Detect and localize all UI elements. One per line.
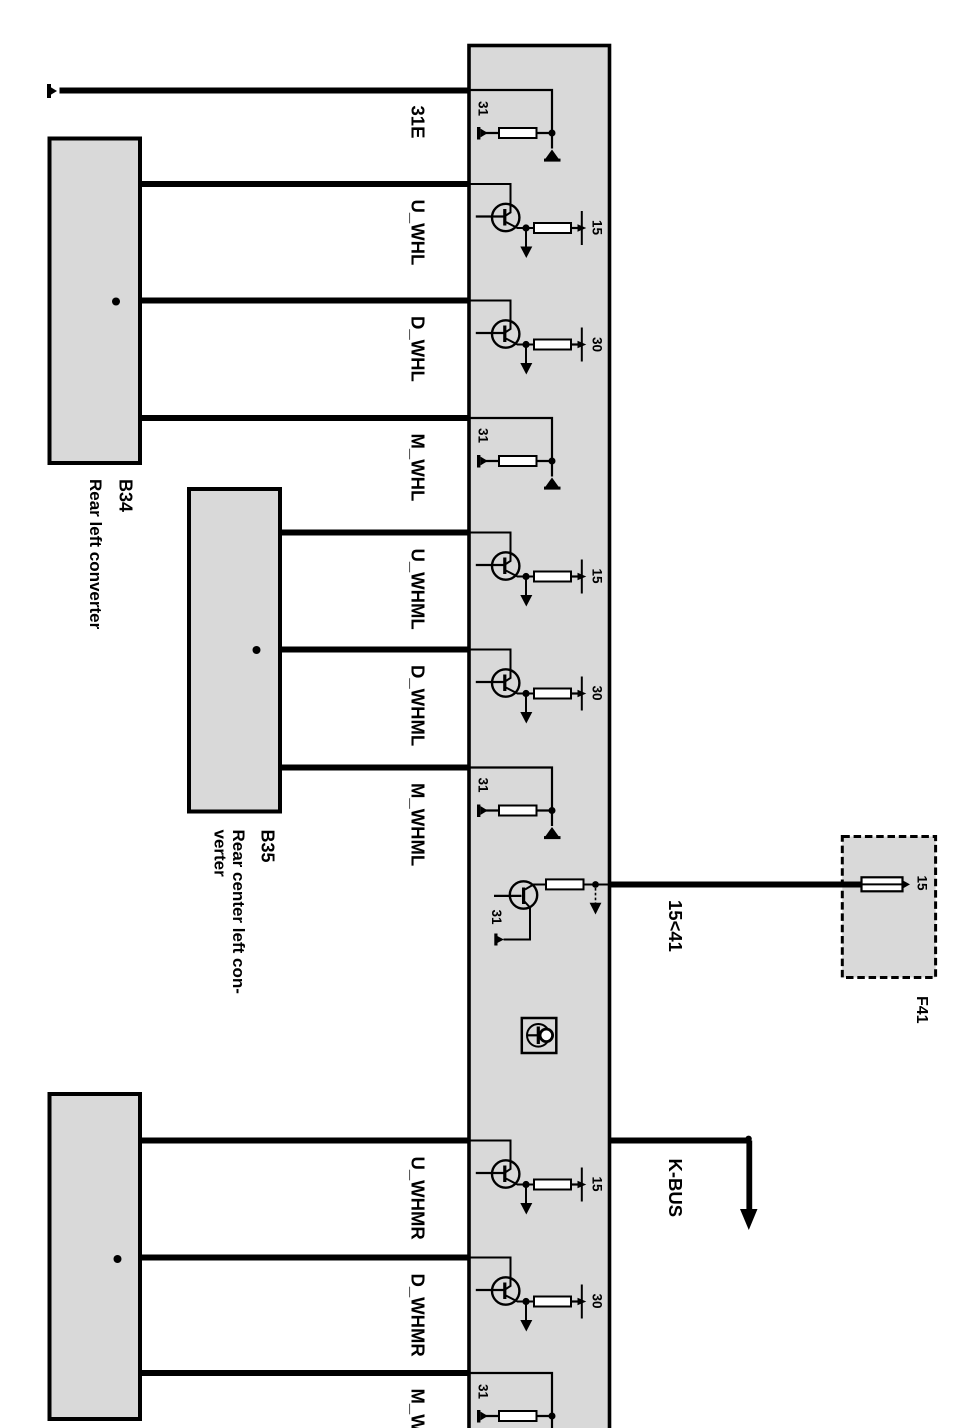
svg-text:B35: B35 [258,830,278,863]
svg-text:M_WHL: M_WHL [407,434,428,502]
svg-text:31: 31 [475,1384,490,1400]
svg-text:M_WHMR: M_WHMR [407,1389,428,1428]
svg-text:30: 30 [590,686,605,701]
svg-text:D_WHMR: D_WHMR [407,1274,428,1357]
svg-text:U_WHL: U_WHL [407,200,428,266]
svg-text:15<41: 15<41 [665,900,686,952]
svg-text:D_WHML: D_WHML [407,665,428,746]
svg-text:31: 31 [475,778,490,794]
svg-text:B34: B34 [116,479,136,512]
svg-text:15: 15 [590,220,605,236]
svg-text:31E: 31E [407,106,428,139]
svg-text:U_WHML: U_WHML [407,549,428,630]
svg-text:D_WHL: D_WHL [407,316,428,382]
svg-text:M_WHML: M_WHML [407,783,428,866]
svg-text:30: 30 [590,1294,605,1309]
svg-text:U_WHMR: U_WHMR [407,1157,428,1240]
svg-text:15: 15 [590,569,605,585]
svg-text:31: 31 [489,910,504,926]
svg-text:31: 31 [475,428,490,444]
svg-text:Rear center left con-: Rear center left con- [229,830,248,994]
svg-text:15: 15 [590,1177,605,1193]
svg-text:30: 30 [590,337,605,352]
svg-text:K-BUS: K-BUS [665,1159,686,1218]
svg-text:verter: verter [211,830,230,878]
svg-text:31: 31 [475,101,490,117]
svg-text:15: 15 [914,876,929,892]
svg-text:F41: F41 [913,996,930,1024]
svg-text:Rear left converter: Rear left converter [86,479,105,630]
